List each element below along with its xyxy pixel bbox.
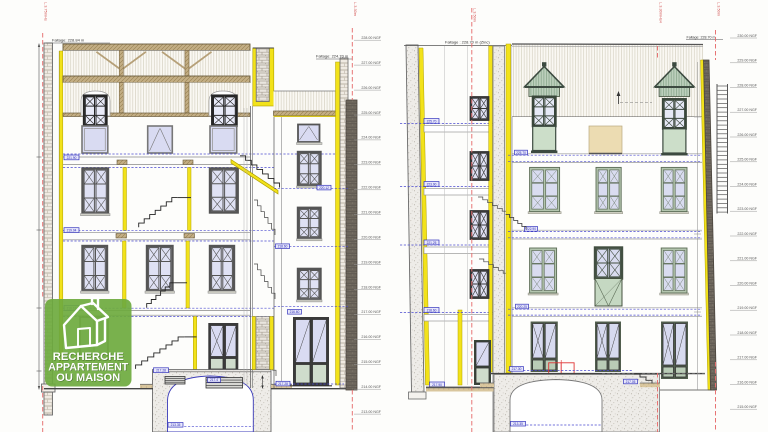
svg-text:216.60: 216.60: [290, 310, 300, 314]
svg-text:226.00 NGF: 226.00 NGF: [737, 133, 757, 137]
svg-text:215.00 NGF: 215.00 NGF: [361, 360, 381, 364]
svg-text:215.00 NGF: 215.00 NGF: [737, 405, 757, 409]
svg-text:228.00 NGF: 228.00 NGF: [737, 83, 757, 87]
svg-text:218.60: 218.60: [278, 245, 288, 249]
svg-text:230.00 NGF: 230.00 NGF: [737, 34, 757, 38]
svg-text:221.00 NGF: 221.00 NGF: [361, 211, 381, 215]
svg-text:213.35: 213.35: [171, 423, 181, 427]
svg-text:220.00 NGF: 220.00 NGF: [737, 281, 757, 285]
svg-text:L.3.30m: L.3.30m: [353, 2, 358, 16]
svg-text:218.60: 218.60: [427, 308, 437, 312]
svg-text:Faitage: 228.70 m: Faitage: 228.70 m: [687, 35, 716, 39]
svg-text:217.00 NGF: 217.00 NGF: [737, 356, 757, 360]
svg-text:L.3.50m: L.3.50m: [473, 8, 478, 22]
svg-text:219.00 NGF: 219.00 NGF: [361, 260, 381, 264]
svg-text:229.00 NGF: 229.00 NGF: [737, 59, 757, 63]
svg-text:217.00 NGF: 217.00 NGF: [361, 310, 381, 314]
svg-text:Faitage: 224.70 m: Faitage: 224.70 m: [316, 54, 349, 59]
svg-text:217.30: 217.30: [512, 367, 522, 371]
svg-text:217.90: 217.90: [432, 383, 442, 387]
svg-text:217.05: 217.05: [626, 380, 636, 384]
svg-text:Faitage : 228.70 m (Zinc): Faitage : 228.70 m (Zinc): [445, 40, 490, 45]
svg-text:222.00 NGF: 222.00 NGF: [361, 186, 381, 190]
svg-text:L.3.30mHs4: L.3.30mHs4: [658, 2, 663, 24]
svg-text:228.00 NGF: 228.00 NGF: [361, 36, 381, 40]
svg-text:226.00 NGF: 226.00 NGF: [361, 86, 381, 90]
svg-text:L.3.75mHs: L.3.75mHs: [44, 2, 49, 21]
svg-text:223.00 NGF: 223.00 NGF: [361, 161, 381, 165]
svg-text:213.35: 213.35: [513, 422, 523, 426]
svg-text:225.00 NGF: 225.00 NGF: [361, 111, 381, 115]
svg-text:218.00 NGF: 218.00 NGF: [361, 285, 381, 289]
svg-text:217.4: 217.4: [210, 378, 218, 382]
svg-text:222.90: 222.90: [526, 227, 536, 231]
svg-text:225.00 NGF: 225.00 NGF: [737, 158, 757, 162]
svg-text:213.00 NGF: 213.00 NGF: [361, 410, 381, 414]
svg-text:222.00 NGF: 222.00 NGF: [737, 232, 757, 236]
svg-text:217.28: 217.28: [278, 382, 288, 386]
svg-text:220.00 NGF: 220.00 NGF: [361, 235, 381, 239]
svg-text:216.00 NGF: 216.00 NGF: [737, 380, 757, 384]
svg-text:225.70: 225.70: [516, 151, 526, 155]
svg-text:221.00 NGF: 221.00 NGF: [737, 257, 757, 261]
svg-text:220.12: 220.12: [319, 186, 329, 190]
svg-text:227.00 NGF: 227.00 NGF: [361, 61, 381, 65]
svg-text:216.00 NGF: 216.00 NGF: [361, 335, 381, 339]
svg-text:214.00 NGF: 214.00 NGF: [361, 385, 381, 389]
svg-text:227.00 NGF: 227.00 NGF: [737, 108, 757, 112]
svg-text:223.90: 223.90: [427, 182, 437, 186]
svg-text:OU MAISON: OU MAISON: [56, 372, 120, 384]
svg-text:219.04: 219.04: [67, 229, 77, 233]
svg-text:217.28: 217.28: [156, 369, 166, 373]
svg-text:221.25: 221.25: [427, 241, 437, 245]
svg-text:220.25: 220.25: [517, 305, 527, 309]
svg-text:Faitage: 228.84 m: Faitage: 228.84 m: [52, 38, 85, 43]
svg-text:225.70: 225.70: [427, 119, 437, 123]
svg-text:224.00 NGF: 224.00 NGF: [361, 136, 381, 140]
svg-text:221.90: 221.90: [67, 156, 77, 160]
svg-text:219.00 NGF: 219.00 NGF: [737, 306, 757, 310]
svg-text:L.3.50m: L.3.50m: [716, 2, 721, 16]
svg-text:223.00 NGF: 223.00 NGF: [737, 207, 757, 211]
svg-text:218.00 NGF: 218.00 NGF: [737, 331, 757, 335]
svg-text:224.00 NGF: 224.00 NGF: [737, 182, 757, 186]
